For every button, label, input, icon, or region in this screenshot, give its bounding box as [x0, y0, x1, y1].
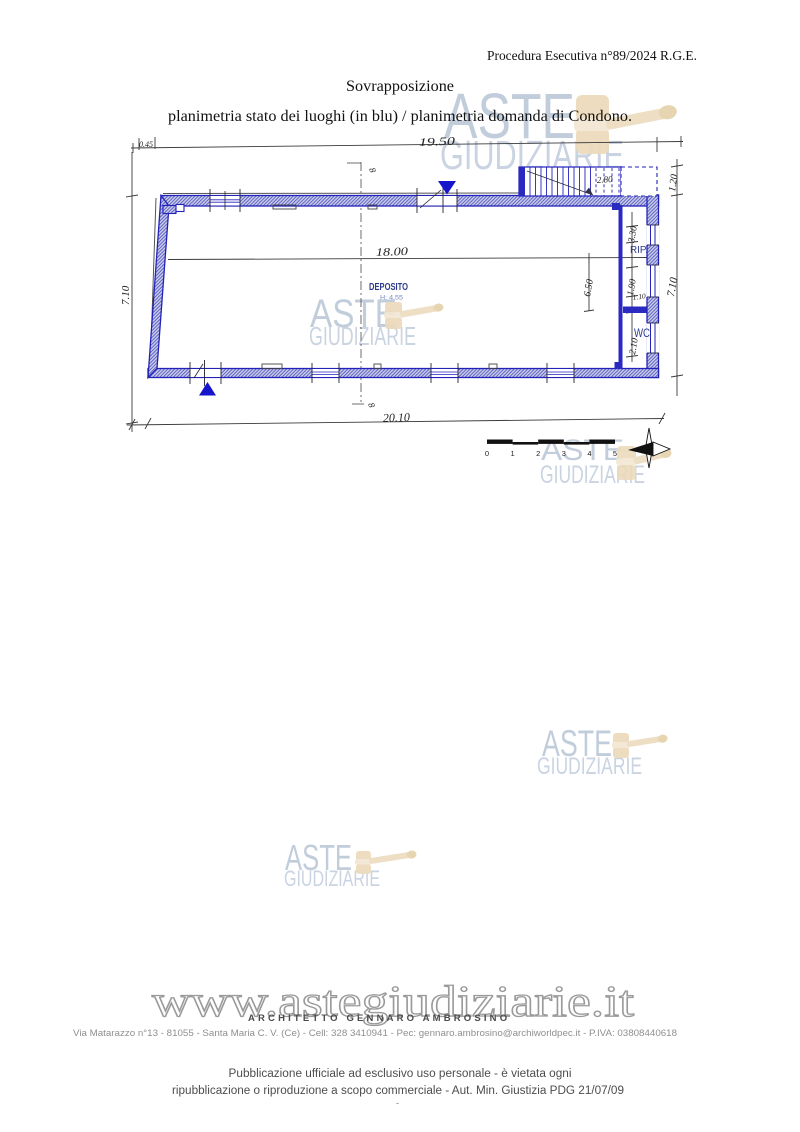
- svg-text:19.50: 19.50: [419, 136, 456, 149]
- svg-text:planimetria stato dei luoghi (: planimetria stato dei luoghi (in blu) / …: [168, 108, 632, 125]
- svg-text:Pubblicazione ufficiale ad esc: Pubblicazione ufficiale ad esclusivo uso…: [229, 1068, 572, 1080]
- svg-text:Via Matarazzo n°13 - 81055 - S: Via Matarazzo n°13 - 81055 - Santa Maria…: [73, 1028, 677, 1039]
- svg-text:DEPOSITO: DEPOSITO: [369, 281, 408, 293]
- svg-text:5: 5: [613, 449, 617, 458]
- svg-text:7.10: 7.10: [120, 285, 132, 305]
- svg-text:Procedura Esecutiva n°89/2024: Procedura Esecutiva n°89/2024 R.G.E.: [487, 49, 697, 64]
- svg-text:2: 2: [536, 449, 540, 458]
- svg-text:1: 1: [511, 449, 515, 458]
- svg-text:4: 4: [587, 449, 591, 458]
- svg-text:RIP.: RIP.: [630, 245, 648, 256]
- svg-text:20.10: 20.10: [383, 410, 410, 425]
- svg-text:H: 4.55: H: 4.55: [380, 295, 403, 302]
- svg-text:-: -: [396, 1098, 399, 1108]
- svg-text:3: 3: [562, 449, 566, 458]
- svg-text:ARCHITETTO GENNARO AMBROSINO: ARCHITETTO GENNARO AMBROSINO: [248, 1013, 511, 1024]
- svg-text:0: 0: [485, 449, 489, 458]
- svg-text:Sovrapposizione: Sovrapposizione: [346, 78, 454, 95]
- svg-text:2.80: 2.80: [596, 174, 613, 185]
- svg-text:18.00: 18.00: [376, 246, 409, 259]
- svg-text:WC: WC: [634, 328, 650, 340]
- svg-text:0.45: 0.45: [139, 140, 153, 149]
- svg-text:ripubblicazione o riproduzione: ripubblicazione o riproduzione a scopo c…: [172, 1085, 624, 1097]
- svg-text:1.10: 1.10: [632, 291, 646, 302]
